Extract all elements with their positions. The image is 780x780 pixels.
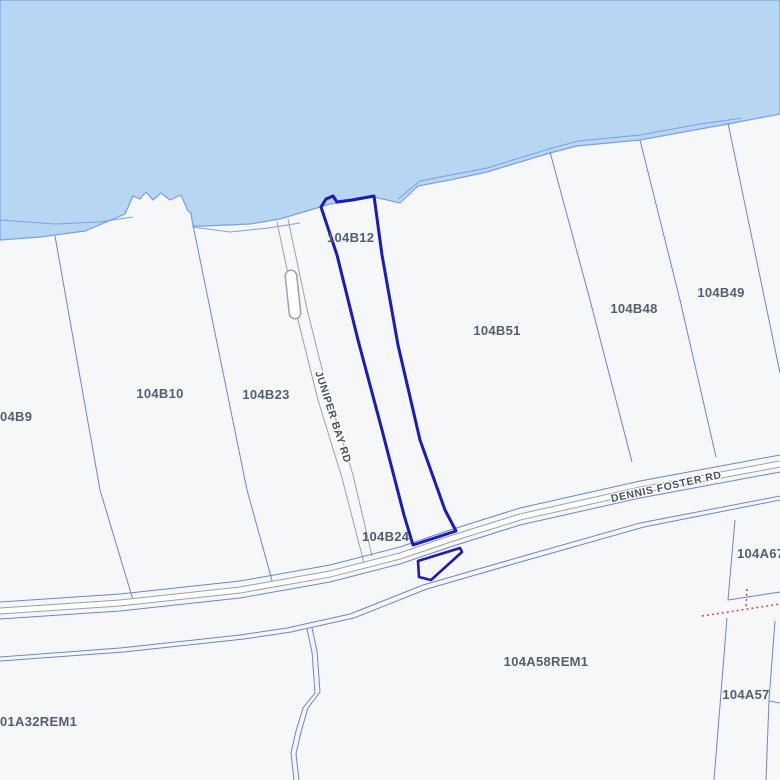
parcel-label: 104B48 — [610, 301, 657, 316]
parcel-label: 104A67 — [737, 546, 780, 561]
parcel-label: 104A58REM1 — [504, 654, 589, 669]
parcel-label: 104B12 — [327, 230, 374, 245]
parcel-label: 104B24 — [362, 529, 410, 544]
parcel-label: 104B49 — [697, 285, 744, 300]
map-canvas[interactable]: 104B12 104B51 104B48 104B49 104B10 104B2… — [0, 0, 780, 780]
parcel-label: 01A32REM1 — [0, 714, 77, 729]
parcel-map-svg: 104B12 104B51 104B48 104B49 104B10 104B2… — [0, 0, 780, 780]
parcel-label: 104A57 — [722, 687, 769, 702]
juniper-road-segment — [291, 276, 295, 313]
parcel-label: 104B10 — [136, 386, 183, 401]
parcel-label: 04B9 — [0, 409, 32, 424]
parcel-label: 104B23 — [242, 387, 289, 402]
parcel-label: 104B51 — [473, 323, 520, 338]
